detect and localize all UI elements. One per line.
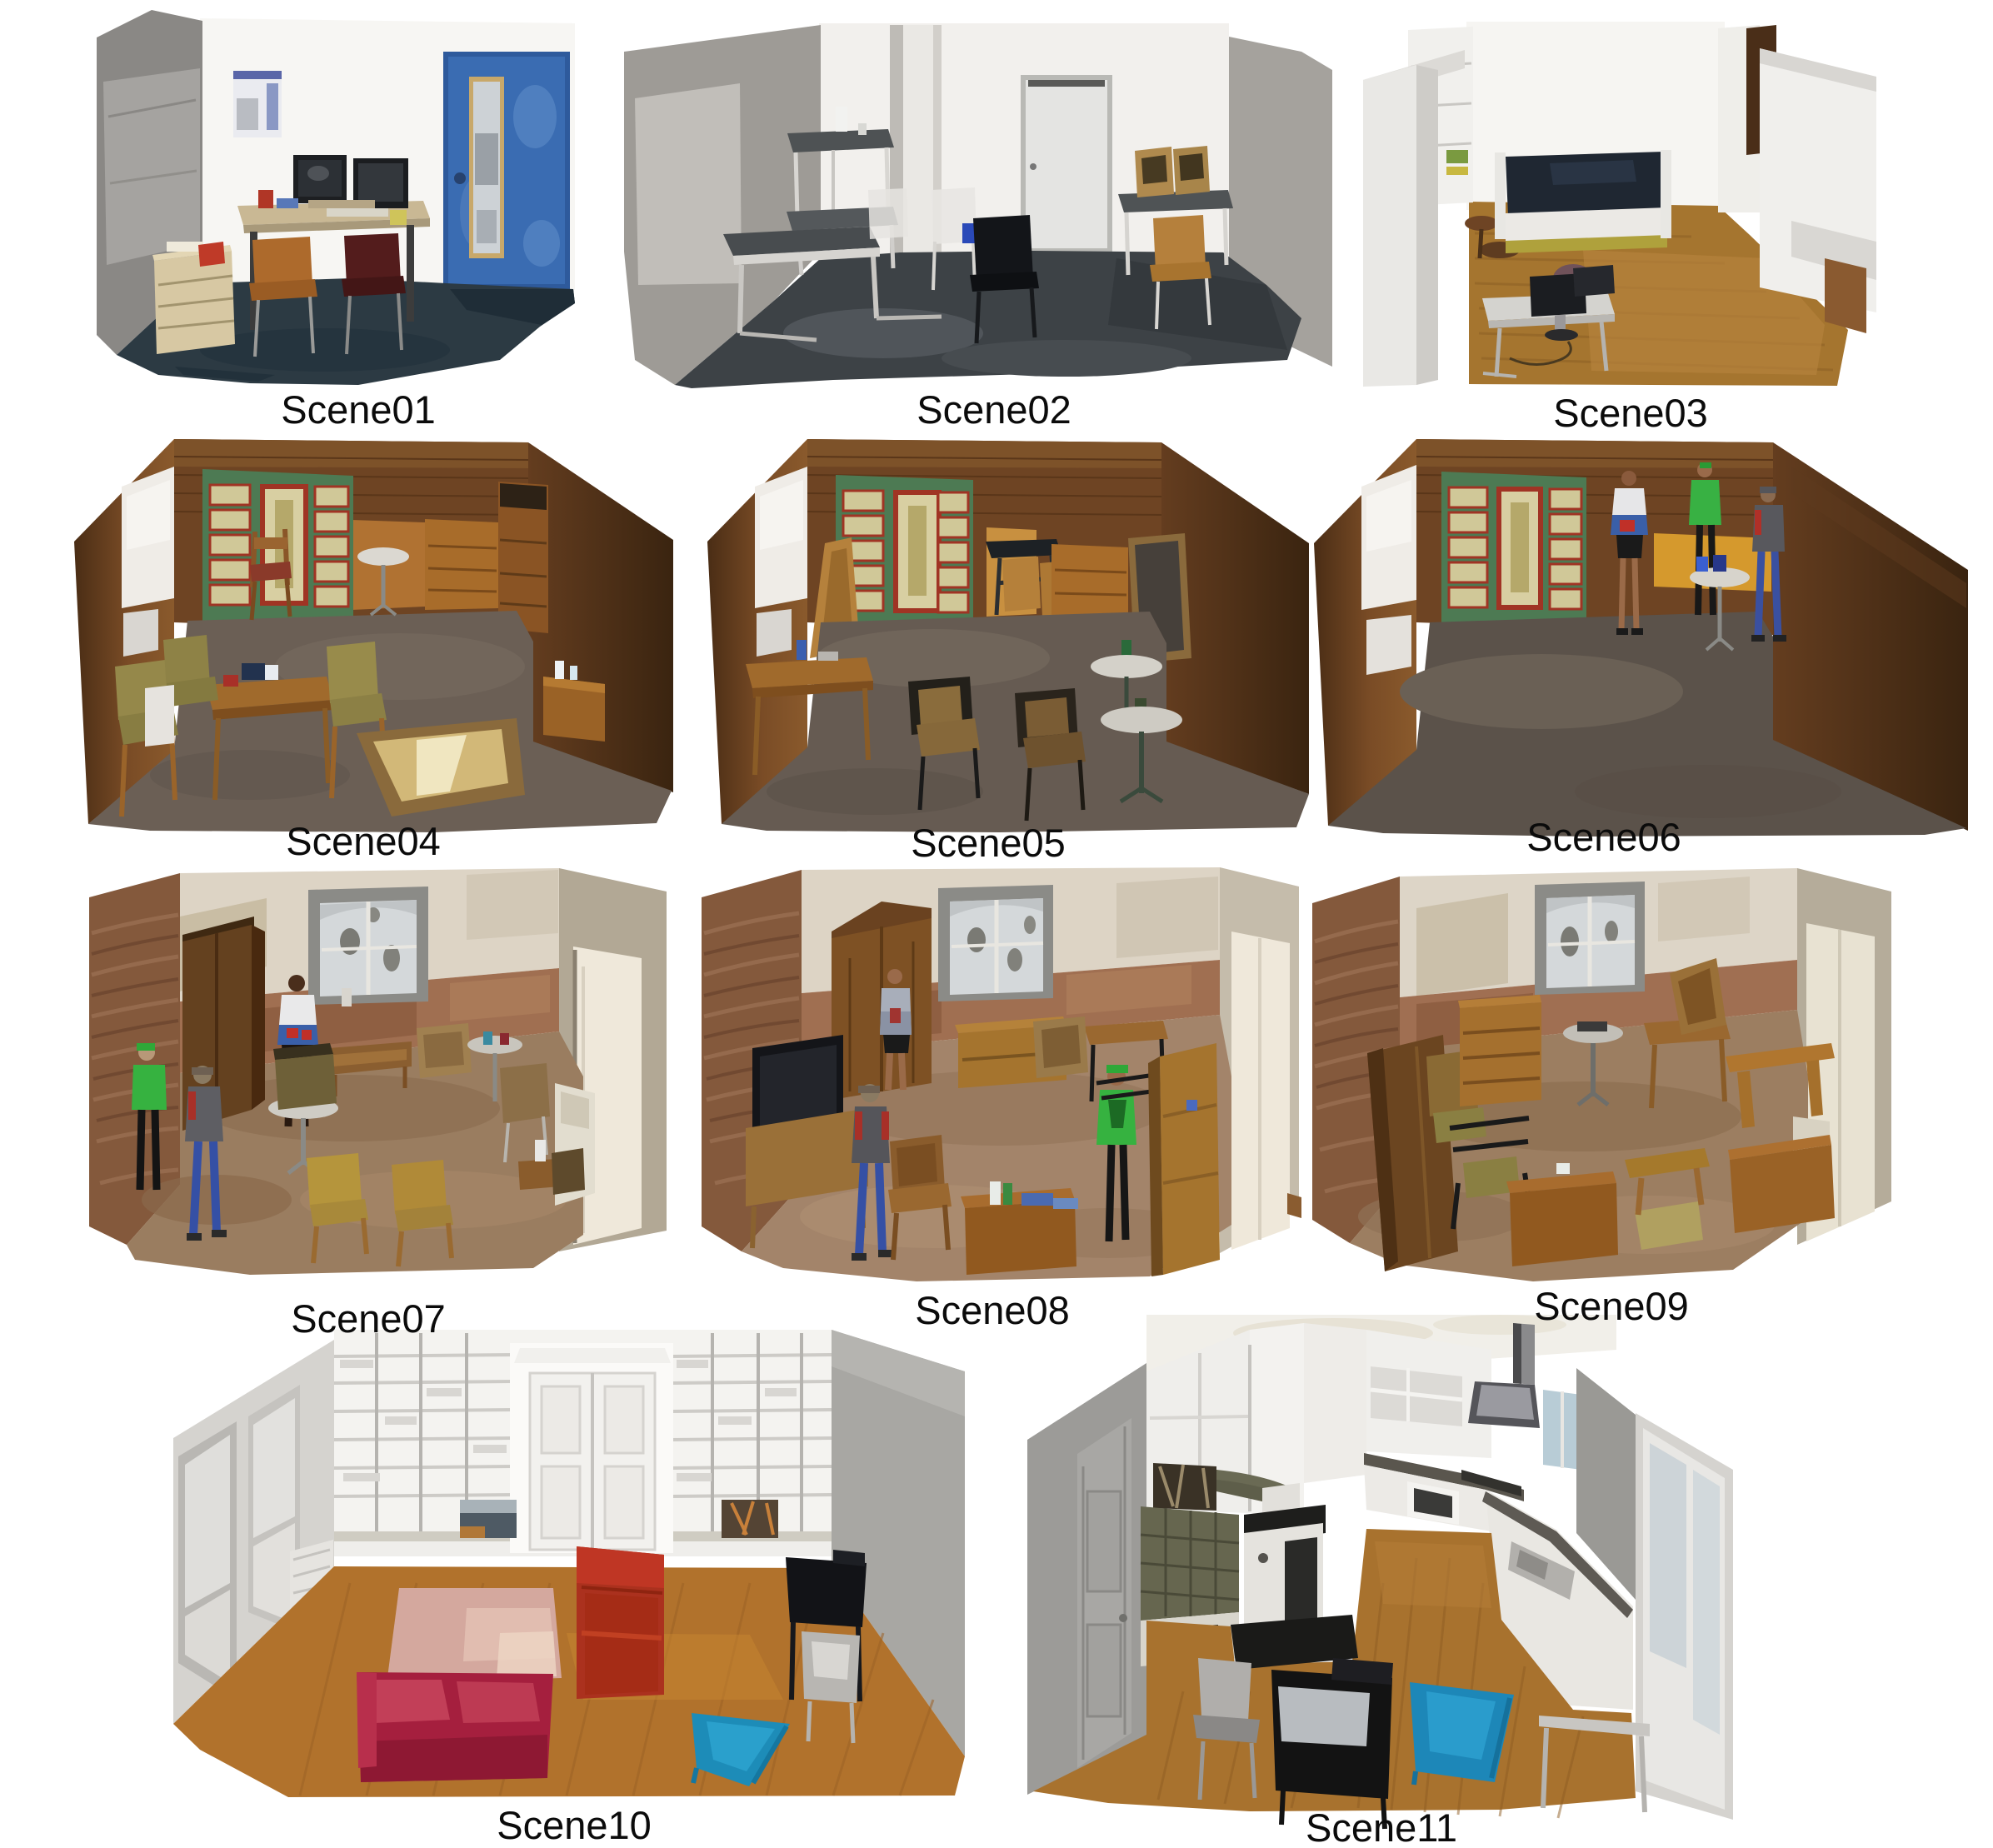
- svg-text:Scene03: Scene03: [1553, 391, 1708, 435]
- svg-text:Scene09: Scene09: [1534, 1284, 1689, 1328]
- svg-text:Scene10: Scene10: [497, 1803, 652, 1847]
- svg-text:Scene01: Scene01: [281, 387, 436, 432]
- svg-text:Scene08: Scene08: [915, 1288, 1070, 1332]
- svg-text:Scene11: Scene11: [1306, 1806, 1457, 1848]
- svg-text:Scene02: Scene02: [917, 387, 1071, 432]
- svg-text:Scene05: Scene05: [911, 821, 1066, 865]
- svg-text:Scene04: Scene04: [286, 819, 441, 863]
- svg-text:Scene06: Scene06: [1526, 815, 1681, 859]
- svg-text:Scene07: Scene07: [291, 1296, 446, 1341]
